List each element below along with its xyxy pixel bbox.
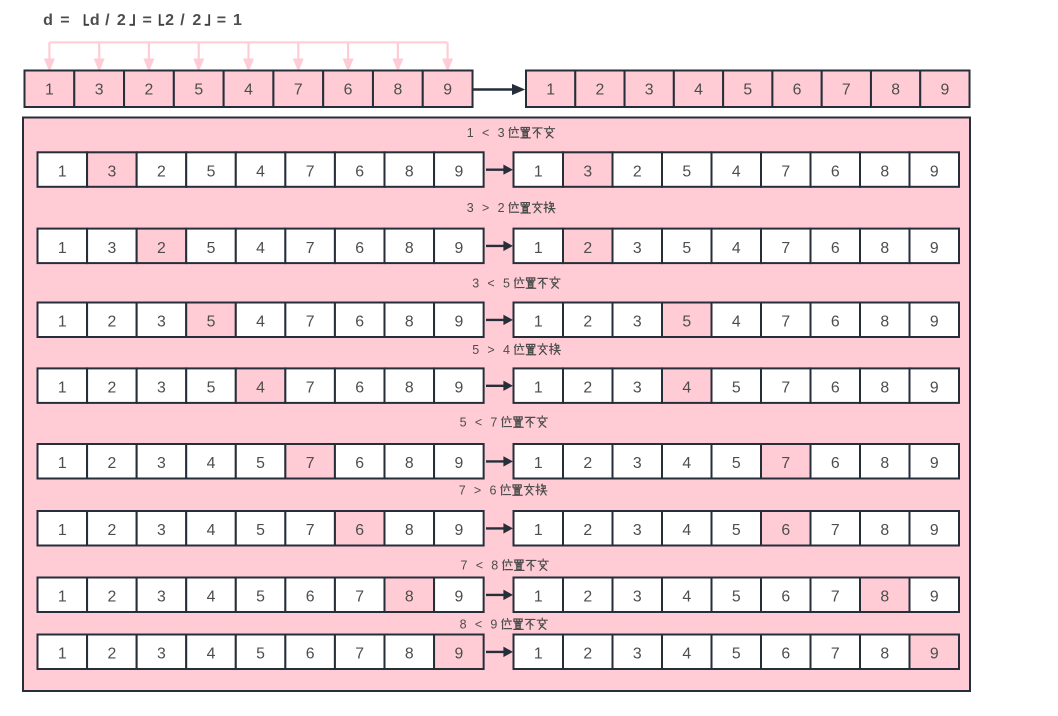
svg-text:9: 9	[454, 240, 463, 257]
svg-text:9: 9	[454, 646, 463, 663]
svg-text:3 < 5: 3 < 5	[472, 276, 512, 290]
svg-text:6: 6	[781, 589, 790, 606]
svg-text:5: 5	[256, 522, 265, 539]
svg-text:6: 6	[831, 314, 840, 331]
svg-text:2: 2	[107, 314, 116, 331]
svg-text:6: 6	[355, 314, 364, 331]
svg-text:1: 1	[58, 455, 67, 472]
svg-text:7: 7	[781, 164, 790, 181]
svg-text:5: 5	[207, 164, 216, 181]
svg-text:=: =	[143, 12, 152, 29]
svg-text:5: 5	[682, 164, 691, 181]
svg-text:3: 3	[157, 646, 166, 663]
svg-text:6: 6	[355, 380, 364, 397]
svg-text:8: 8	[405, 455, 414, 472]
svg-text:8: 8	[393, 82, 402, 99]
svg-text:7 > 6: 7 > 6	[459, 483, 499, 497]
svg-text:5: 5	[732, 522, 741, 539]
svg-text:5: 5	[256, 455, 265, 472]
svg-text:7: 7	[781, 240, 790, 257]
svg-text:4: 4	[207, 589, 216, 606]
svg-text:1: 1	[534, 380, 543, 397]
svg-text:9: 9	[940, 82, 949, 99]
svg-text:7: 7	[306, 240, 315, 257]
svg-text:2: 2	[107, 455, 116, 472]
svg-text:3: 3	[157, 314, 166, 331]
svg-text:5 < 7: 5 < 7	[460, 415, 500, 429]
svg-text:9: 9	[930, 164, 939, 181]
svg-text:1: 1	[534, 164, 543, 181]
svg-text:=: =	[217, 12, 226, 29]
svg-text:d: d	[90, 12, 100, 29]
svg-text:4: 4	[682, 455, 691, 472]
svg-text:1: 1	[534, 314, 543, 331]
svg-text:9: 9	[930, 522, 939, 539]
svg-text:6: 6	[781, 522, 790, 539]
svg-text:8: 8	[880, 240, 889, 257]
svg-text:9: 9	[454, 522, 463, 539]
svg-text:8: 8	[405, 164, 414, 181]
svg-text:6: 6	[831, 240, 840, 257]
svg-text:3: 3	[633, 380, 642, 397]
svg-text:7: 7	[306, 314, 315, 331]
svg-text:/: /	[180, 12, 185, 29]
svg-text:9: 9	[443, 82, 452, 99]
svg-text:1: 1	[58, 164, 67, 181]
svg-text:5: 5	[682, 314, 691, 331]
svg-text:6: 6	[306, 646, 315, 663]
svg-text:1: 1	[233, 12, 242, 29]
svg-text:3: 3	[107, 164, 116, 181]
svg-text:7: 7	[831, 522, 840, 539]
svg-text:6: 6	[831, 380, 840, 397]
svg-text:1: 1	[58, 380, 67, 397]
svg-text:3: 3	[633, 646, 642, 663]
svg-text:6: 6	[355, 522, 364, 539]
svg-text:9: 9	[930, 589, 939, 606]
svg-text:9: 9	[454, 314, 463, 331]
svg-text:4: 4	[682, 646, 691, 663]
svg-text:4: 4	[256, 240, 265, 257]
svg-text:8: 8	[405, 380, 414, 397]
svg-text:8: 8	[880, 522, 889, 539]
svg-text:2: 2	[596, 82, 605, 99]
svg-text:3: 3	[157, 380, 166, 397]
svg-text:9: 9	[930, 380, 939, 397]
svg-text:1: 1	[58, 589, 67, 606]
svg-text:8: 8	[405, 646, 414, 663]
svg-text:2: 2	[192, 12, 201, 29]
svg-text:6: 6	[355, 455, 364, 472]
svg-text:9: 9	[930, 314, 939, 331]
svg-text:8: 8	[880, 314, 889, 331]
svg-text:9: 9	[454, 589, 463, 606]
svg-text:2: 2	[583, 455, 592, 472]
svg-text:4: 4	[682, 522, 691, 539]
svg-text:3: 3	[633, 522, 642, 539]
svg-text:5: 5	[194, 82, 203, 99]
svg-text:3: 3	[633, 455, 642, 472]
svg-text:4: 4	[256, 380, 265, 397]
svg-text:5: 5	[256, 646, 265, 663]
svg-text:8: 8	[880, 380, 889, 397]
svg-text:2: 2	[583, 240, 592, 257]
svg-text:8: 8	[405, 314, 414, 331]
svg-text:2: 2	[165, 12, 174, 29]
svg-text:1: 1	[534, 522, 543, 539]
svg-text:8: 8	[880, 646, 889, 663]
svg-text:4: 4	[244, 82, 253, 99]
svg-text:8 < 9: 8 < 9	[460, 617, 500, 631]
svg-text:2: 2	[107, 589, 116, 606]
svg-text:3: 3	[633, 589, 642, 606]
svg-text:2: 2	[117, 12, 126, 29]
svg-text:4: 4	[732, 314, 741, 331]
svg-text:2: 2	[633, 164, 642, 181]
svg-text:9: 9	[930, 240, 939, 257]
svg-text:2: 2	[145, 82, 154, 99]
svg-text:7: 7	[306, 380, 315, 397]
svg-text:9: 9	[454, 455, 463, 472]
svg-text:7 < 8: 7 < 8	[461, 558, 501, 572]
svg-text:3: 3	[107, 240, 116, 257]
svg-text:5 > 4: 5 > 4	[472, 343, 512, 357]
svg-text:3: 3	[645, 82, 654, 99]
svg-text:3: 3	[95, 82, 104, 99]
svg-text:1: 1	[534, 646, 543, 663]
svg-text:6: 6	[831, 164, 840, 181]
svg-text:3: 3	[157, 522, 166, 539]
svg-text:9: 9	[930, 455, 939, 472]
svg-text:2: 2	[157, 240, 166, 257]
svg-text:5: 5	[207, 380, 216, 397]
svg-text:3 > 2: 3 > 2	[467, 201, 507, 215]
svg-text:6: 6	[355, 240, 364, 257]
svg-text:6: 6	[831, 455, 840, 472]
svg-text:5: 5	[207, 314, 216, 331]
svg-text:2: 2	[107, 522, 116, 539]
svg-text:3: 3	[157, 455, 166, 472]
svg-text:7: 7	[306, 455, 315, 472]
svg-text:7: 7	[842, 82, 851, 99]
svg-text:5: 5	[207, 240, 216, 257]
svg-text:2: 2	[583, 314, 592, 331]
svg-text:6: 6	[781, 646, 790, 663]
svg-text:2: 2	[107, 646, 116, 663]
svg-text:7: 7	[781, 380, 790, 397]
svg-text:7: 7	[355, 646, 364, 663]
svg-text:4: 4	[682, 589, 691, 606]
svg-text:3: 3	[633, 240, 642, 257]
svg-text:8: 8	[405, 589, 414, 606]
svg-text:4: 4	[682, 380, 691, 397]
svg-text:4: 4	[256, 164, 265, 181]
svg-text:1: 1	[45, 82, 54, 99]
svg-text:1: 1	[534, 455, 543, 472]
svg-text:7: 7	[831, 589, 840, 606]
svg-text:2: 2	[583, 380, 592, 397]
svg-text:1: 1	[534, 589, 543, 606]
svg-text:6: 6	[355, 164, 364, 181]
svg-text:3: 3	[633, 314, 642, 331]
svg-text:d: d	[43, 12, 53, 29]
svg-text:4: 4	[207, 646, 216, 663]
svg-text:7: 7	[781, 314, 790, 331]
svg-text:7: 7	[294, 82, 303, 99]
svg-text:5: 5	[732, 646, 741, 663]
svg-text:2: 2	[157, 164, 166, 181]
svg-text:8: 8	[880, 589, 889, 606]
svg-text:8: 8	[891, 82, 900, 99]
svg-text:5: 5	[256, 589, 265, 606]
svg-text:4: 4	[732, 240, 741, 257]
svg-text:/: /	[105, 12, 110, 29]
svg-text:=: =	[60, 12, 69, 29]
svg-text:5: 5	[743, 82, 752, 99]
svg-text:9: 9	[454, 380, 463, 397]
svg-text:2: 2	[107, 380, 116, 397]
svg-text:6: 6	[344, 82, 353, 99]
svg-text:7: 7	[831, 646, 840, 663]
svg-text:4: 4	[207, 522, 216, 539]
svg-text:5: 5	[732, 589, 741, 606]
svg-text:6: 6	[793, 82, 802, 99]
svg-text:4: 4	[694, 82, 703, 99]
svg-text:2: 2	[583, 646, 592, 663]
svg-text:7: 7	[306, 164, 315, 181]
svg-text:7: 7	[355, 589, 364, 606]
svg-text:1: 1	[58, 646, 67, 663]
svg-text:1: 1	[546, 82, 555, 99]
svg-text:4: 4	[256, 314, 265, 331]
svg-text:5: 5	[682, 240, 691, 257]
svg-text:8: 8	[405, 522, 414, 539]
svg-text:3: 3	[157, 589, 166, 606]
svg-text:4: 4	[207, 455, 216, 472]
svg-text:1 < 3: 1 < 3	[467, 126, 507, 140]
svg-text:5: 5	[732, 455, 741, 472]
svg-text:1: 1	[58, 240, 67, 257]
svg-text:7: 7	[306, 522, 315, 539]
svg-text:7: 7	[781, 455, 790, 472]
svg-text:1: 1	[58, 314, 67, 331]
svg-text:9: 9	[454, 164, 463, 181]
svg-text:2: 2	[583, 589, 592, 606]
svg-text:8: 8	[880, 455, 889, 472]
svg-text:9: 9	[930, 646, 939, 663]
svg-text:2: 2	[583, 522, 592, 539]
svg-text:1: 1	[58, 522, 67, 539]
svg-text:6: 6	[306, 589, 315, 606]
svg-text:8: 8	[405, 240, 414, 257]
svg-text:3: 3	[583, 164, 592, 181]
svg-text:1: 1	[534, 240, 543, 257]
svg-text:5: 5	[732, 380, 741, 397]
svg-text:4: 4	[732, 164, 741, 181]
svg-text:8: 8	[880, 164, 889, 181]
